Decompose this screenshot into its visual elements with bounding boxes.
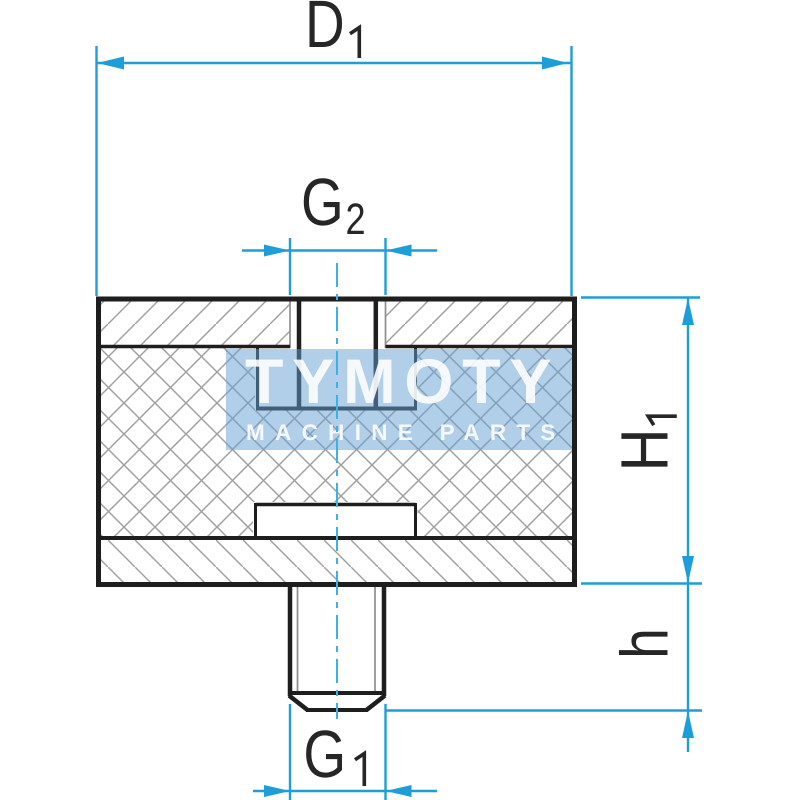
svg-text:TYMOTY: TYMOTY (245, 347, 560, 417)
svg-text:H: H (608, 428, 683, 471)
svg-text:2: 2 (346, 195, 366, 244)
svg-text:MACHINE PARTS: MACHINE PARTS (246, 420, 566, 445)
svg-text:G: G (303, 717, 346, 792)
svg-text:h: h (607, 628, 682, 659)
svg-text:D: D (305, 0, 345, 62)
svg-text:G: G (301, 165, 344, 240)
